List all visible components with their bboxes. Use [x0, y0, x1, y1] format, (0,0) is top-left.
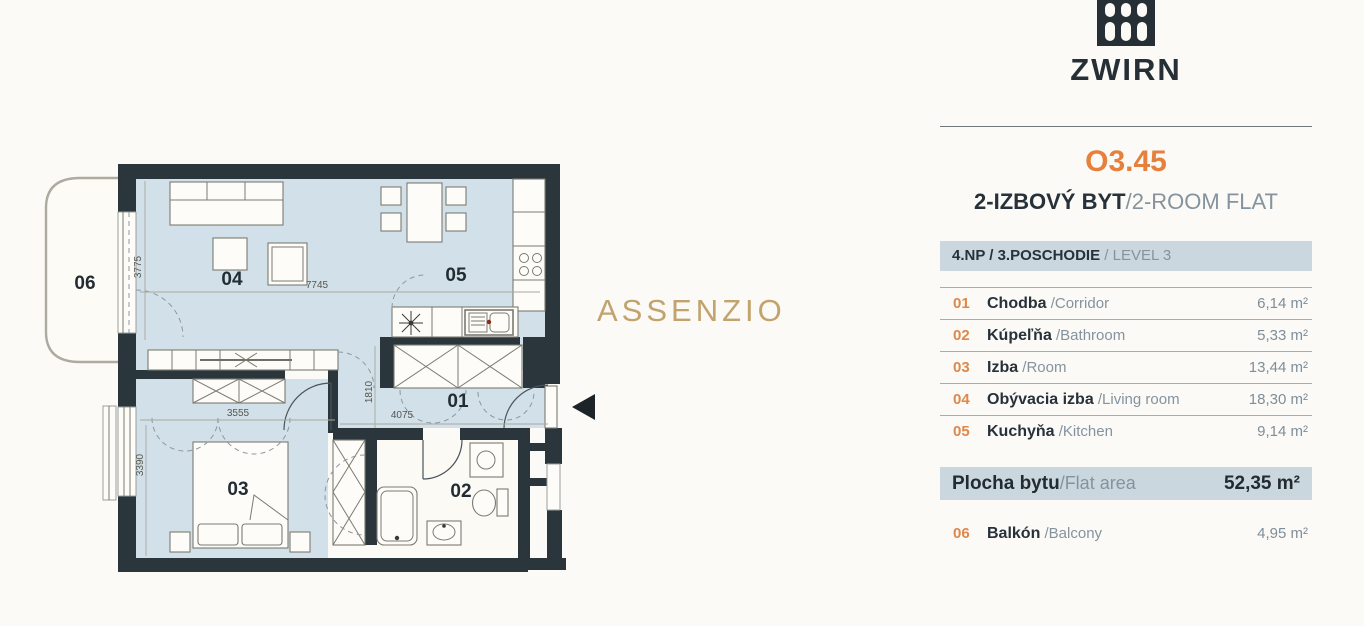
- light-symbol: [399, 311, 423, 335]
- plan-label-corridor: 01: [447, 391, 469, 412]
- row-number: 03: [940, 359, 987, 376]
- entrance-arrow-icon: [572, 394, 595, 420]
- floorplan-page: 7745 3775 3555 3390 1810 4075 06 04 05 0…: [0, 0, 1364, 626]
- flat-area-bar: Plocha bytu /Flat area 52,35 m²: [940, 467, 1312, 500]
- plan-label-room: 03: [227, 479, 248, 500]
- row-area: 18,30 m²: [1249, 391, 1312, 408]
- corridor-wardrobe: [394, 345, 522, 388]
- unit-type: 2-IZBOVÝ BYT/2-ROOM FLAT: [940, 189, 1312, 215]
- balcony-table: 06 Balkón /Balcony 4,95 m²: [940, 518, 1312, 549]
- table-row-bathroom: 02 Kúpeľňa /Bathroom 5,33 m²: [940, 320, 1312, 352]
- level-sk: 4.NP / 3.POSCHODIE: [952, 247, 1100, 264]
- unit-type-en: /2-ROOM FLAT: [1126, 189, 1278, 214]
- plan-label-bathroom: 02: [450, 481, 471, 502]
- table-row-living: 04 Obývacia izba /Living room 18,30 m²: [940, 384, 1312, 416]
- row-area: 4,95 m²: [1257, 525, 1312, 542]
- assenzio-watermark: ASSENZIO: [597, 293, 786, 329]
- dim-living-width: 7745: [306, 280, 329, 291]
- row-name: Chodba /Corridor: [987, 295, 1257, 313]
- flat-area-value: 52,35 m²: [1224, 473, 1300, 495]
- room-table: 01 Chodba /Corridor 6,14 m² 02 Kúpeľňa /…: [940, 287, 1312, 447]
- flat-area-label-sk: Plocha bytu: [952, 473, 1060, 495]
- plan-label-kitchen: 05: [445, 265, 467, 286]
- row-number: 04: [940, 391, 987, 408]
- level-en: / LEVEL 3: [1100, 247, 1171, 264]
- row-name: Kuchyňa /Kitchen: [987, 423, 1257, 441]
- plan-label-living: 04: [221, 269, 243, 290]
- row-area: 6,14 m²: [1257, 295, 1312, 312]
- info-panel: ZWIRN O3.45 2-IZBOVÝ BYT/2-ROOM FLAT 4.N…: [940, 0, 1312, 626]
- row-area: 13,44 m²: [1249, 359, 1312, 376]
- dim-corridor-width: 4075: [391, 410, 414, 421]
- table-row-kitchen: 05 Kuchyňa /Kitchen 9,14 m²: [940, 416, 1312, 447]
- row-name: Obývacia izba /Living room: [987, 391, 1249, 409]
- row-area: 9,14 m²: [1257, 423, 1312, 440]
- dim-corridor-height: 1810: [364, 380, 375, 403]
- row-name: Balkón /Balcony: [987, 525, 1257, 543]
- table-row-balcony: 06 Balkón /Balcony 4,95 m²: [940, 518, 1312, 549]
- row-number: 01: [940, 295, 987, 312]
- table-row-room: 03 Izba /Room 13,44 m²: [940, 352, 1312, 384]
- plan-label-balcony: 06: [74, 273, 95, 294]
- row-number: 02: [940, 327, 987, 344]
- level-bar: 4.NP / 3.POSCHODIE / LEVEL 3: [940, 241, 1312, 271]
- bathtub: [377, 487, 417, 545]
- brand-name: ZWIRN: [940, 52, 1312, 88]
- balcony: [46, 178, 124, 362]
- bathroom-sink: [427, 521, 461, 545]
- washing-machine: [470, 443, 503, 477]
- row-number: 06: [940, 525, 987, 542]
- row-name: Izba /Room: [987, 359, 1249, 377]
- divider-line: [940, 126, 1312, 127]
- floor-plan: 7745 3775 3555 3390 1810 4075 06 04 05 0…: [0, 0, 620, 626]
- unit-number: O3.45: [940, 145, 1312, 179]
- row-area: 5,33 m²: [1257, 327, 1312, 344]
- row-number: 05: [940, 423, 987, 440]
- unit-type-sk: 2-IZBOVÝ BYT: [974, 189, 1126, 214]
- zwirn-logo-icon: [1097, 0, 1155, 46]
- dim-living-height: 3775: [133, 255, 144, 278]
- row-name: Kúpeľňa /Bathroom: [987, 327, 1257, 345]
- toilet: [473, 489, 509, 516]
- living-closet: [148, 350, 338, 370]
- dim-bedroom-height: 3390: [135, 453, 146, 476]
- flat-area-label-en: /Flat area: [1060, 473, 1136, 494]
- table-row-corridor: 01 Chodba /Corridor 6,14 m²: [940, 288, 1312, 320]
- dim-bedroom-width: 3555: [227, 408, 250, 419]
